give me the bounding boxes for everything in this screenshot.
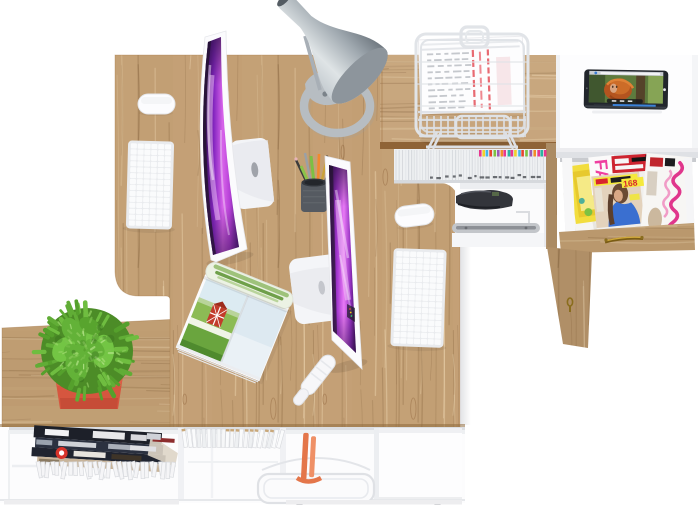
svg-text:168: 168 — [623, 177, 638, 188]
